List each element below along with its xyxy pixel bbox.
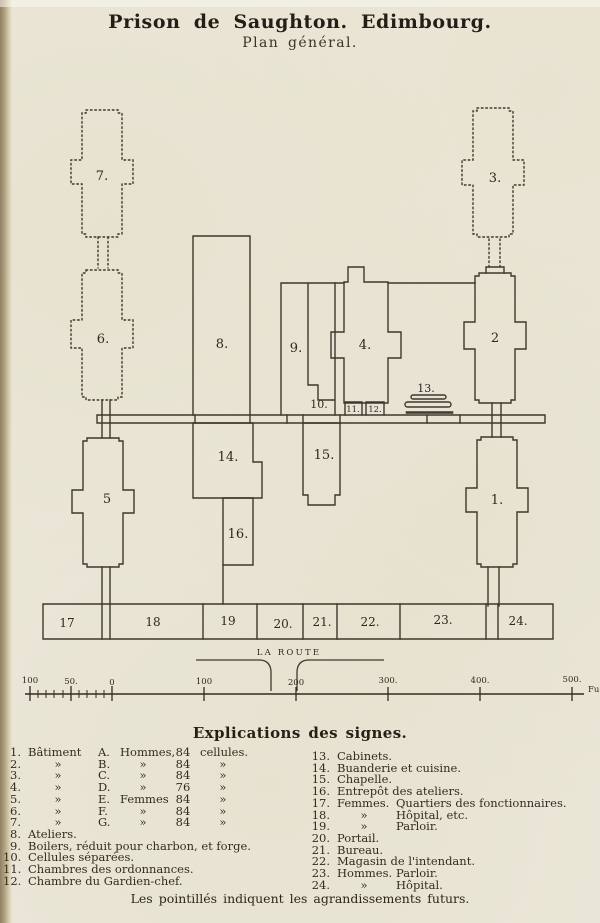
label-building-15: 15. (314, 448, 335, 463)
building-2-top-porch (486, 267, 504, 273)
label-building-17: 17 (59, 616, 74, 630)
label-building-23: 23. (433, 613, 452, 627)
corridor-wall-ticks (195, 415, 460, 423)
label-building-5: 5 (103, 492, 111, 507)
label-building-24: 24. (508, 614, 527, 628)
corridor-gallery (97, 415, 545, 423)
label-building-7: 7. (96, 169, 108, 184)
prison-plan-drawing: 1. 2 3. 4. 5 6. 7. 8. 9. 10. 11. 12. 13.… (0, 0, 600, 923)
scale-label-500: 500. (563, 675, 582, 685)
label-building-21: 21. (312, 615, 331, 629)
building-number-labels: 1. 2 3. 4. 5 6. 7. 8. 9. 10. 11. 12. 13.… (59, 169, 527, 631)
building-15-outline (303, 423, 340, 505)
cabinets-13-bar2 (405, 402, 451, 407)
scale-label-0: 0 (109, 678, 114, 688)
label-building-19: 19 (220, 614, 235, 628)
label-building-20: 20. (273, 617, 292, 631)
label-building-22: 22. (360, 615, 379, 629)
existing-buildings-solid (43, 236, 553, 639)
label-building-18: 18 (145, 615, 160, 629)
future-buildings-dotted (71, 108, 524, 400)
scale-label-100: 100 (196, 677, 212, 687)
cabinets-13-bar1 (411, 395, 446, 399)
dotted-connector-necks (98, 237, 500, 268)
scale-tick-labels: 100 50. 0 100 200 300. 400. 500. (22, 675, 582, 688)
label-building-9: 9. (290, 341, 302, 356)
building-4-outline (331, 267, 401, 403)
scale-label-200: 200 (288, 678, 304, 688)
scale-label-50: 50. (64, 677, 78, 687)
scale-label-100l: 100 (22, 676, 38, 686)
label-building-4: 4. (359, 338, 371, 353)
label-building-16: 16. (228, 527, 249, 542)
road-label: LA ROUTE (257, 648, 322, 658)
scale-label-400: 400. (471, 676, 490, 686)
scanned-page: Prison de Saughton. Edimbourg. Plan géné… (0, 0, 600, 923)
scale-label-300: 300. (379, 676, 398, 686)
road-bracket-right (297, 660, 384, 691)
label-building-2: 2 (491, 331, 499, 346)
label-building-14: 14. (218, 450, 239, 465)
front-range-outline (43, 604, 553, 639)
label-building-10: 10. (310, 398, 328, 411)
label-building-13: 13. (417, 382, 435, 395)
connector-stems (102, 400, 501, 606)
scale-bar: 100 50. 0 100 200 300. 400. 500. Fu (22, 675, 600, 701)
label-building-8: 8. (216, 337, 228, 352)
label-building-3: 3. (489, 171, 501, 186)
label-building-6: 6. (97, 332, 109, 347)
label-building-12: 12. (368, 405, 382, 415)
label-building-11: 11. (346, 405, 360, 415)
building-8-outline (193, 236, 250, 415)
scale-unit-label: Fu (588, 685, 600, 695)
label-building-1: 1. (491, 493, 503, 508)
